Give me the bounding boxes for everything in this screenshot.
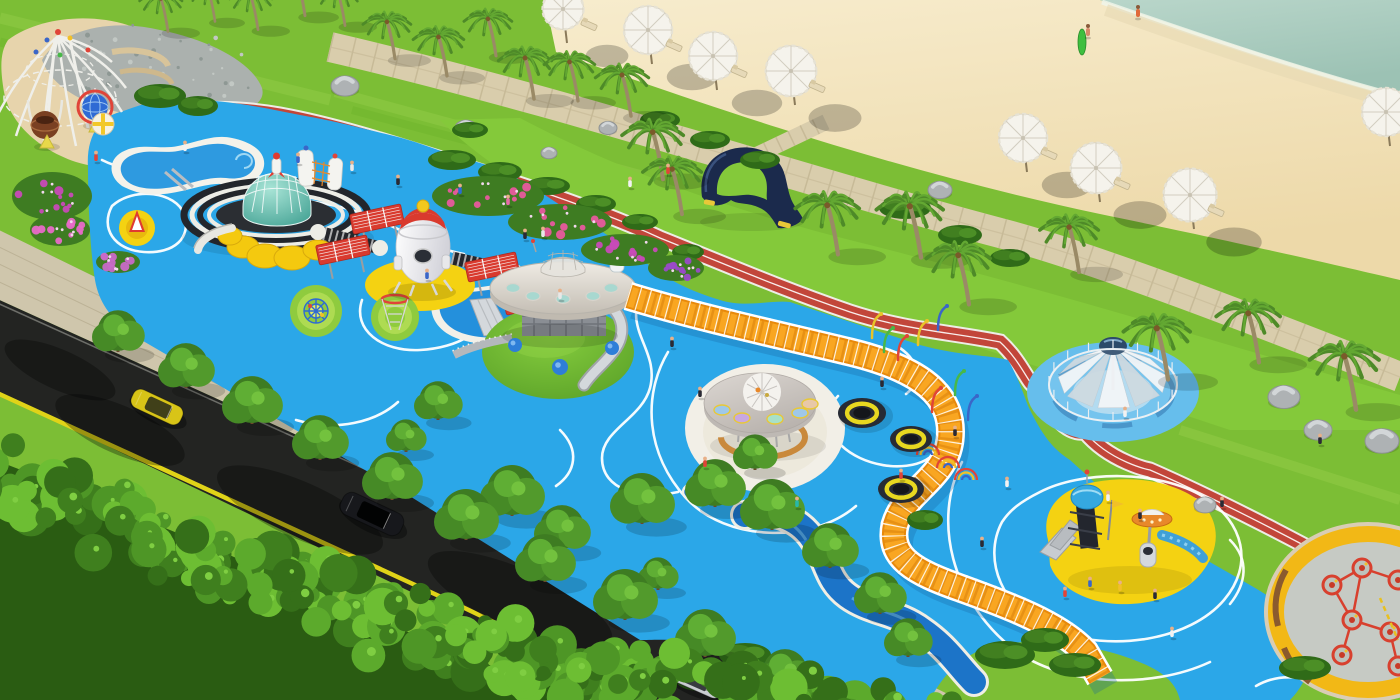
lawn-parasol [92,113,114,135]
porthole [526,292,540,301]
roof-porthole [714,405,730,415]
flower-patch [30,214,90,246]
bush [178,96,218,116]
bush [622,214,658,230]
rock [1268,385,1300,409]
mound-sphere [508,338,522,352]
rock [1365,429,1399,454]
rock [1304,420,1332,441]
rock [1194,497,1216,513]
park-scene-svg [0,0,1400,700]
rock [331,76,359,97]
bush [1279,656,1331,680]
bush [740,151,780,169]
aerial-park-rendering: Aerial 3D rendering of a seaside space-t… [0,0,1400,700]
porthole [604,284,618,293]
rock [599,122,617,135]
bush [990,249,1030,267]
ring-pad-web-spinner [290,285,342,337]
mound-sphere [552,359,568,375]
bush [1021,628,1069,652]
porthole [556,295,570,304]
mini-rocket-pad [119,210,155,246]
bush [1049,653,1101,677]
flower-patch [12,172,92,220]
flower-patch [648,255,704,281]
bush [938,225,982,245]
porthole [506,284,520,293]
porthole [586,292,600,301]
flower-patch [96,251,140,273]
roof-porthole [802,399,818,409]
bush [907,510,943,530]
bush [428,150,476,170]
roof-porthole [734,413,750,423]
roof-porthole [792,408,808,418]
rock [928,181,952,199]
bush [134,84,186,108]
roof-porthole [767,414,783,424]
mound-sphere [605,341,619,355]
bush [690,131,730,149]
bush [452,122,488,138]
rock [541,147,557,159]
